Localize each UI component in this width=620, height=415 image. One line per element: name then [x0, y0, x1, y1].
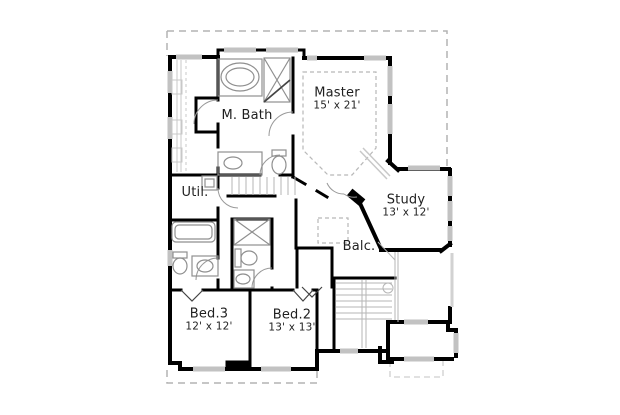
roof-outline-icon — [167, 31, 447, 383]
bathtub-icon — [172, 222, 215, 242]
garden-tub-icon — [218, 59, 262, 96]
closet-rod-icon — [172, 60, 186, 172]
floorplan-drawing — [0, 0, 620, 415]
sink-icon — [234, 270, 254, 288]
washer-icon — [202, 176, 217, 190]
study-opening-icon — [360, 148, 390, 179]
shower-door-icon — [264, 80, 290, 102]
interior-walls — [170, 57, 395, 369]
shower-icon — [234, 219, 270, 245]
balcony-opening-icon — [318, 218, 348, 243]
floor-plan: Master 15' x 21' M. Bath Study 13' x 12'… — [0, 0, 620, 415]
toilet-icon — [272, 150, 286, 174]
roof-outline-bay-icon — [390, 361, 443, 377]
toilet-icon — [235, 249, 257, 267]
vanity-sink-icon — [218, 152, 262, 175]
corner-shower-icon — [264, 58, 290, 102]
toilet-icon — [173, 252, 187, 274]
sink-icon — [192, 256, 218, 276]
staircase-icon — [232, 177, 398, 348]
